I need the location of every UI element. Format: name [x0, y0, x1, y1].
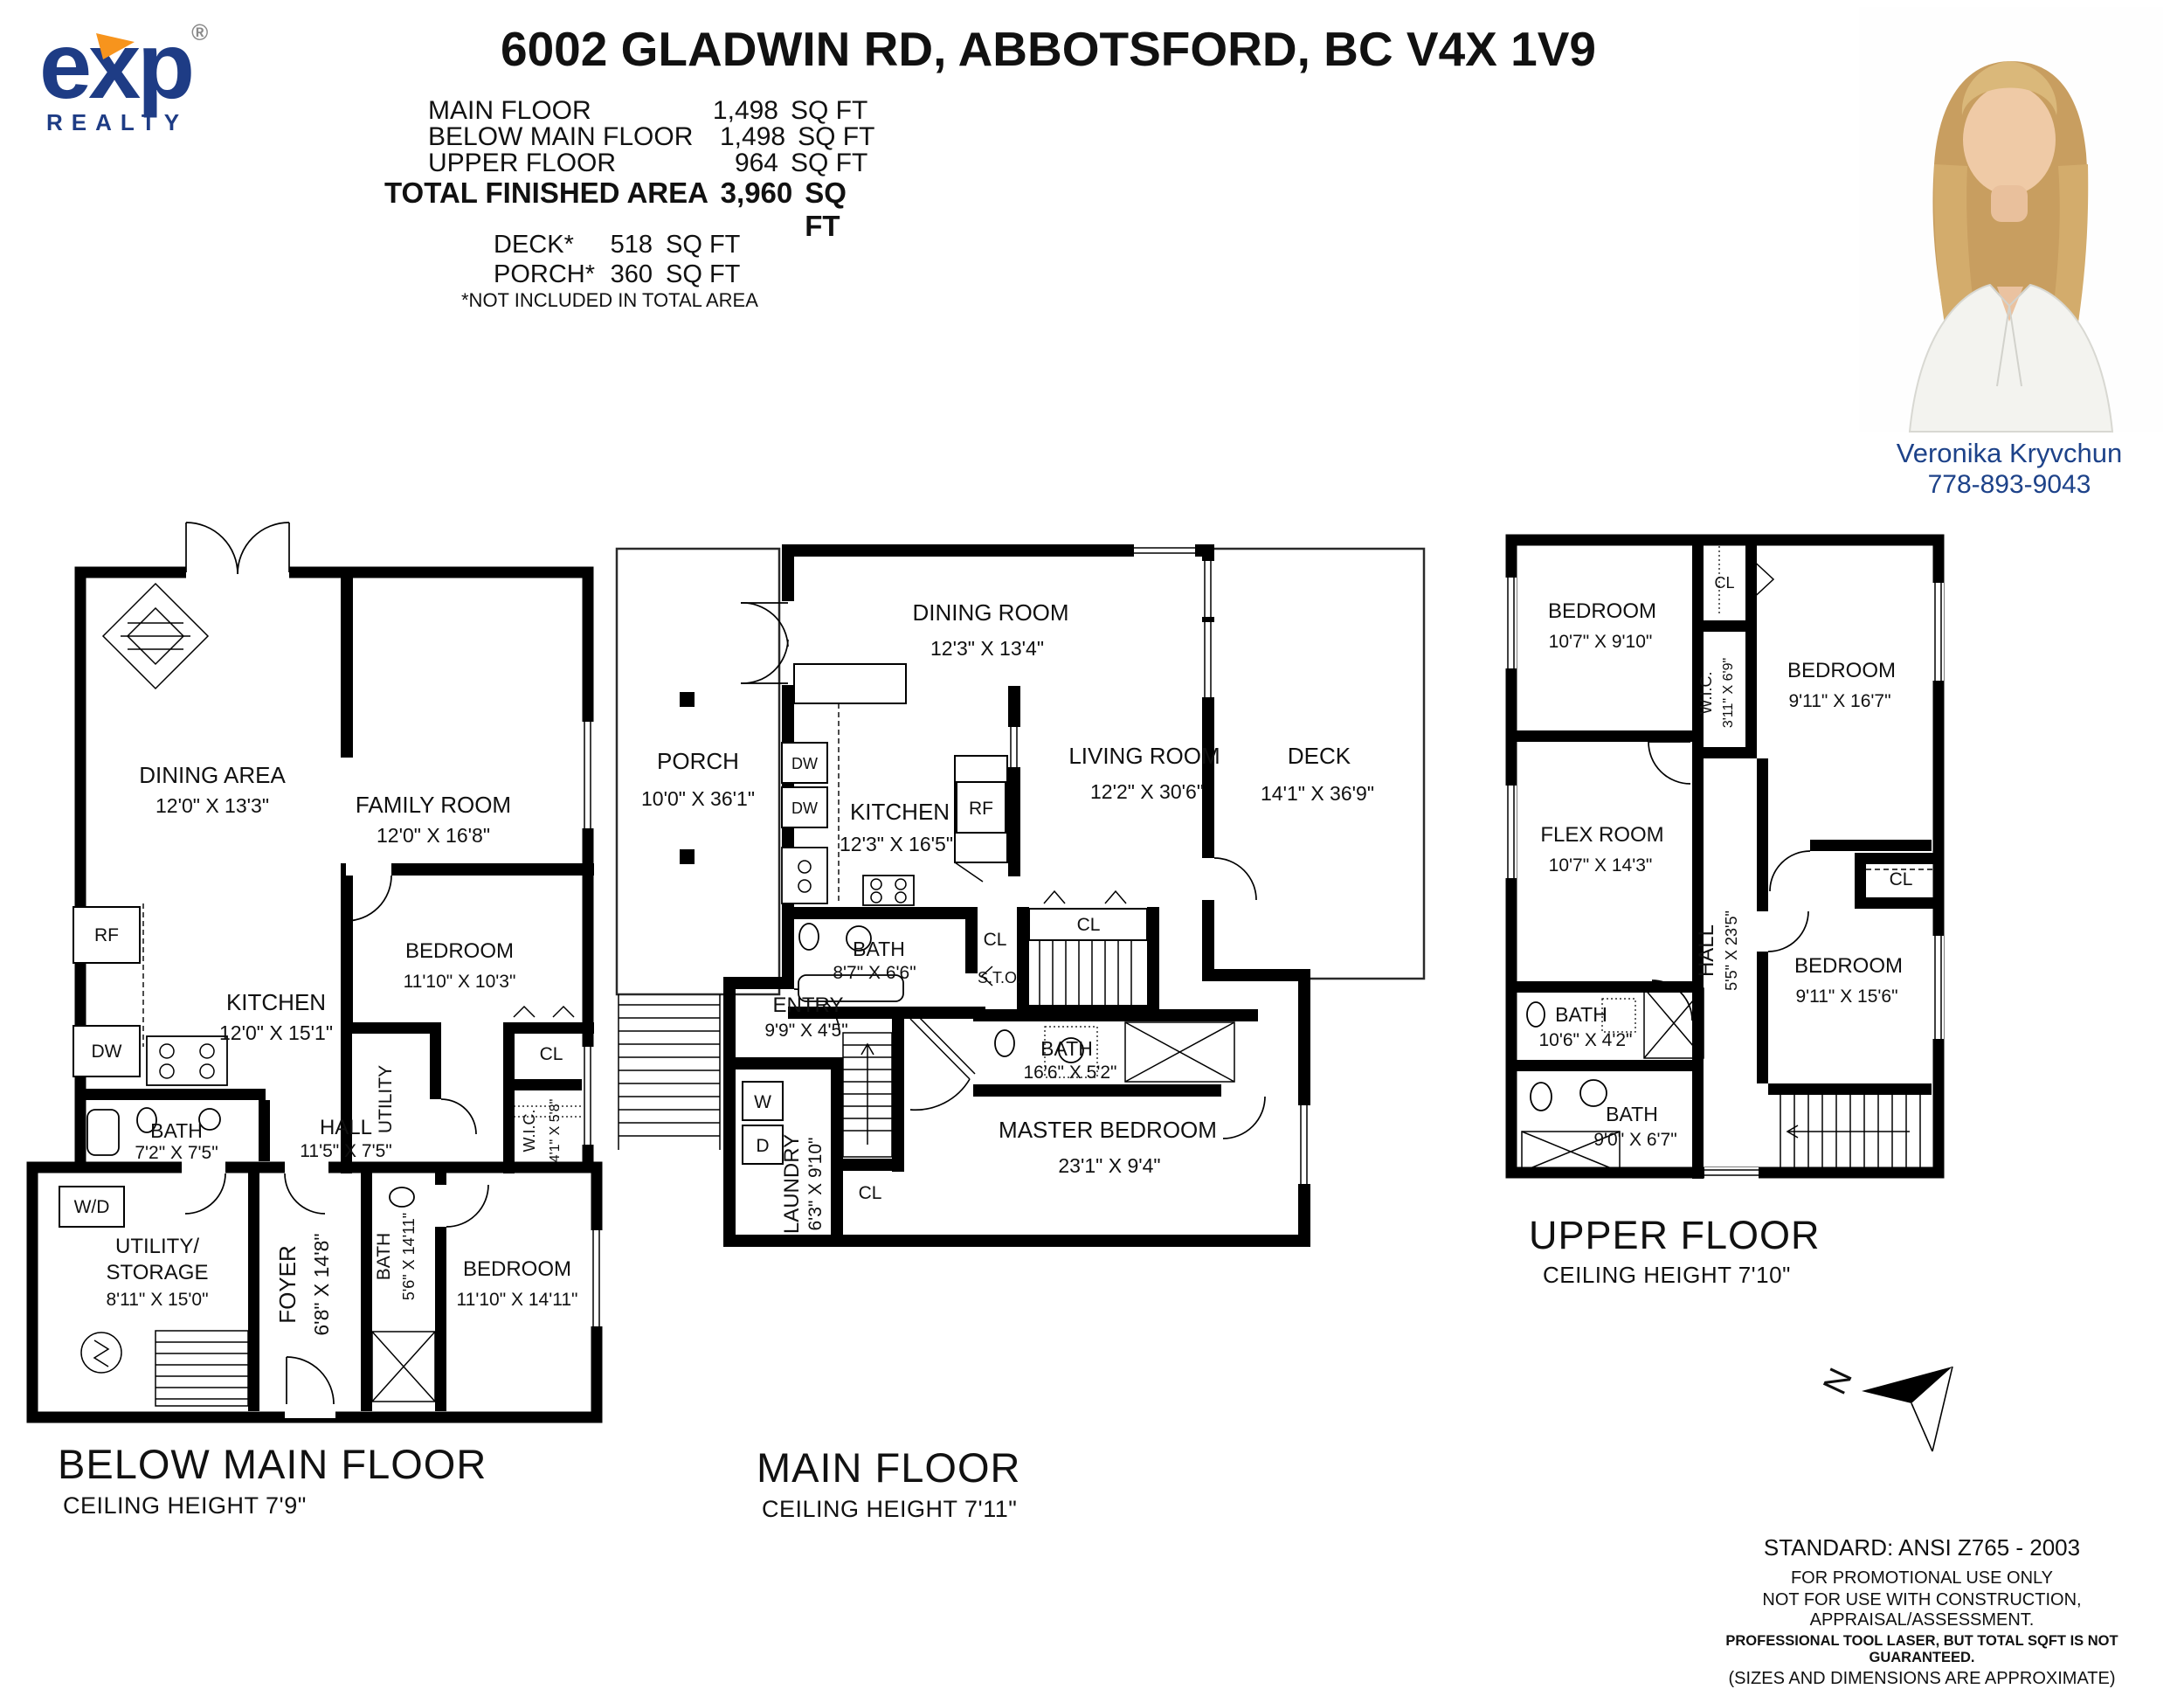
room-label: KITCHEN	[850, 799, 950, 825]
wall-mbath-top	[973, 1009, 1258, 1021]
extra-row-deck: DECK*518SQ FT	[494, 231, 749, 260]
closet-label: CL	[540, 1044, 563, 1064]
room-label: BATH	[374, 1233, 394, 1280]
shower-box	[372, 1332, 435, 1402]
storage-label: S.T.O.	[978, 969, 1021, 986]
sink-icon	[1580, 1080, 1607, 1106]
shower-box	[1125, 1022, 1234, 1082]
disclaimer-not-for-use: NOT FOR USE WITH CONSTRUCTION, APPRAISAL…	[1677, 1590, 2167, 1630]
disclaimer-approximate: (SIZES AND DIMENSIONS ARE APPROXIMATE)	[1677, 1669, 2167, 1689]
toilet-icon	[1527, 1002, 1545, 1027]
room-label: UTILITY/	[115, 1235, 199, 1258]
wall-kitchen-bath	[80, 1089, 266, 1100]
stove-icon	[863, 876, 914, 905]
logo-orange-accent-icon	[94, 31, 136, 61]
room-dims: 12'3" X 16'5"	[840, 833, 953, 855]
room-label: LIVING ROOM	[1068, 743, 1220, 769]
room-label: DINING AREA	[139, 762, 286, 788]
closet-label: CL	[984, 930, 1007, 950]
wall-bedroom1-bottom	[1517, 730, 1692, 742]
room-label: ENTRY	[773, 993, 844, 1017]
extra-row-porch: PORCH*360SQ FT	[494, 260, 749, 290]
room-label: STORAGE	[107, 1261, 209, 1284]
area-row-main: MAIN FLOOR1,498SQ FT	[384, 96, 878, 122]
extras-summary: DECK*518SQ FT PORCH*360SQ FT	[494, 231, 749, 290]
toilet-icon	[390, 1187, 414, 1207]
wall-foyer-bath	[361, 1167, 372, 1411]
wall-wic-bottom	[1692, 747, 1757, 758]
room-label: HALL	[320, 1116, 372, 1139]
room-dims: 9'11" X 16'7"	[1788, 691, 1890, 711]
main-floor-title: MAIN FLOOR	[757, 1443, 1020, 1492]
room-dims: 12'0" X 15'1"	[219, 1021, 333, 1044]
room-dims: 9'11" X 15'6"	[1795, 986, 1897, 1007]
toilet-icon	[995, 1030, 1014, 1056]
room-dims: 12'3" X 13'4"	[930, 637, 1044, 660]
below-openings-doors	[182, 523, 603, 1418]
wall-living-partial	[1008, 686, 1020, 876]
upper-floor-ceiling: CEILING HEIGHT 7'10"	[1543, 1262, 1791, 1289]
below-floor-ceiling: CEILING HEIGHT 7'9"	[63, 1492, 307, 1519]
tub-icon	[87, 1110, 119, 1155]
room-dims: 8'11" X 15'0"	[106, 1290, 208, 1310]
room-dims: 8'7" X 6'6"	[833, 963, 916, 983]
room-dims: 11'10" X 14'11"	[457, 1290, 578, 1310]
room-dims: 11'5" X 7'5"	[300, 1141, 391, 1161]
room-label: BEDROOM	[1794, 954, 1903, 978]
room-dims: 14'1" X 36'9"	[1261, 782, 1374, 805]
room-label: HALL	[1695, 924, 1718, 977]
page-title: 6002 GLADWIN RD, ABBOTSFORD, BC V4X 1V9	[288, 21, 1808, 77]
stairs-below	[156, 1331, 248, 1406]
wall-utility-top	[341, 1022, 441, 1034]
wall-cl-wic-left	[1692, 540, 1704, 758]
logo-e: e	[39, 12, 88, 118]
upper-floor-plan: BEDROOM 10'7" X 9'10" CL W.I.C. 3'11" X …	[1499, 527, 1953, 1200]
disclaimer-standard: STANDARD: ANSI Z765 - 2003	[1677, 1534, 2167, 1561]
area-row-below: BELOW MAIN FLOOR1,498SQ FT	[384, 122, 878, 149]
closet-label: CL	[859, 1183, 882, 1203]
room-dims: 9'9" X 4'5"	[764, 1021, 847, 1041]
area-row-total: TOTAL FINISHED AREA3,960SQ FT	[384, 177, 878, 208]
room-label: LAUNDRY	[780, 1134, 804, 1234]
wall-bath-cl	[965, 907, 978, 973]
wall-bath-divider	[1517, 1060, 1692, 1071]
porch-steps	[619, 994, 720, 1150]
room-label: BATH	[1040, 1037, 1093, 1060]
room-dims: 5'5" X 23'5"	[1723, 910, 1740, 991]
fridge-label: RF	[94, 925, 119, 945]
wall-laundry-top	[729, 1057, 843, 1069]
room-label: FOYER	[274, 1245, 301, 1324]
toilet-icon	[799, 924, 819, 950]
wall-cl-bottom	[503, 1079, 594, 1090]
wall-wic-left	[503, 1090, 515, 1173]
wall-utility-right	[430, 1022, 441, 1099]
dishwasher-label: DW	[791, 800, 818, 817]
upper-floor-title: UPPER FLOOR	[1529, 1213, 1821, 1258]
wall-cl2-left	[1855, 853, 1866, 909]
fireplace-icon	[103, 584, 208, 689]
room-label: W.I.C.	[1697, 672, 1715, 715]
agent-photo	[1859, 7, 2163, 432]
room-label: MASTER BEDROOM	[999, 1117, 1217, 1143]
closet-label: CL	[1714, 574, 1734, 592]
wall-stairs-right	[1147, 907, 1159, 1017]
agent-name: Veronika Kryvchun	[1843, 437, 2175, 469]
wall-cl-bottom	[1692, 620, 1757, 632]
room-dims: 12'0" X 16'8"	[377, 824, 490, 847]
fridge-label: RF	[969, 799, 993, 819]
diagonal-door	[910, 1014, 975, 1110]
room-dims: 5'6" X 14'11"	[400, 1213, 418, 1300]
area-row-upper: UPPER FLOOR964SQ FT	[384, 149, 878, 175]
wall-entry-top	[729, 977, 794, 989]
wall-mbath-bottom	[973, 1084, 1223, 1097]
toilet-icon	[1531, 1083, 1552, 1111]
room-label: PORCH	[657, 748, 739, 774]
room-label: UTILITY	[376, 1065, 396, 1133]
wall-cl2-top	[1855, 853, 1939, 864]
room-dims: 11'10" X 10'3"	[404, 972, 516, 992]
room-dims: 16'6" X 5'2"	[1024, 1063, 1117, 1083]
room-dims: 4'1" X 5'8"	[548, 1099, 563, 1163]
wall-storage-foyer	[248, 1167, 259, 1411]
dishwasher-label: DW	[791, 755, 818, 772]
wall-cl3-top	[843, 1159, 904, 1171]
wall-bath-hall	[259, 1100, 270, 1161]
below-floor-title: BELOW MAIN FLOOR	[58, 1440, 487, 1488]
room-label: BATH	[853, 938, 905, 960]
main-floor-plan: PORCH 10'0" X 36'1" DINING ROOM 12'3" X …	[610, 533, 1435, 1284]
stairs-upper	[1780, 1095, 1920, 1167]
washer-label: W	[754, 1092, 771, 1112]
kitchen-sink-icon	[782, 848, 827, 903]
logo-p: p	[137, 12, 191, 118]
compass-n-label: N	[1816, 1363, 1860, 1401]
room-label: BATH	[150, 1119, 203, 1142]
room-label: KITCHEN	[226, 989, 326, 1015]
kitchen-counter	[794, 664, 906, 703]
main-floor-ceiling: CEILING HEIGHT 7'11"	[762, 1496, 1017, 1523]
closet-label: CL	[1890, 869, 1913, 889]
room-dims: 10'6" X 4'2"	[1539, 1030, 1633, 1050]
logo-word: exp®	[39, 23, 240, 107]
wall-cl2-bottom	[1855, 897, 1939, 909]
room-label: DINING ROOM	[912, 599, 1068, 626]
room-label: W.I.C.	[521, 1110, 538, 1153]
porch-post	[680, 692, 695, 707]
stairs-down	[843, 1033, 892, 1157]
logo-x: x	[88, 23, 137, 107]
room-dims: 10'7" X 14'3"	[1549, 855, 1653, 876]
room-dims: 9'0" X 6'7"	[1593, 1130, 1676, 1150]
water-heater-icon	[81, 1333, 121, 1373]
washer-dryer-label: W/D	[74, 1197, 110, 1217]
wall-cl-top	[503, 1022, 594, 1034]
room-label: BEDROOM	[463, 1257, 571, 1281]
room-label: FLEX ROOM	[1540, 823, 1663, 847]
below-main-floor-plan: DINING AREA 12'0" X 13'3" FAMILY ROOM 12…	[24, 488, 606, 1431]
area-note: *NOT INCLUDED IN TOTAL AREA	[461, 289, 750, 312]
room-dims: 10'7" X 9'10"	[1549, 632, 1653, 652]
wall-stairs-top	[1768, 1083, 1932, 1095]
room-dims: 6'8" X 14'8"	[310, 1233, 333, 1335]
room-label: BATH	[1555, 1003, 1607, 1026]
room-label: BATH	[1606, 1103, 1658, 1125]
disclaimer-block: STANDARD: ANSI Z765 - 2003 FOR PROMOTION…	[1677, 1534, 2167, 1689]
wall-bedroom-left	[341, 876, 353, 1033]
wall-laundry-right	[831, 1057, 843, 1241]
wall-stairdown-right	[892, 1019, 904, 1172]
compass-arrow	[1862, 1367, 1952, 1403]
room-label: BEDROOM	[1787, 659, 1896, 682]
room-dims: 6'3" X 9'10"	[805, 1138, 826, 1231]
disclaimer-promotional: FOR PROMOTIONAL USE ONLY	[1677, 1568, 2167, 1589]
room-dims: 10'0" X 36'1"	[641, 787, 755, 810]
room-label: FAMILY ROOM	[356, 792, 511, 818]
area-summary: MAIN FLOOR1,498SQ FT BELOW MAIN FLOOR1,4…	[384, 96, 878, 208]
room-label: BEDROOM	[1548, 599, 1656, 623]
room-label: DECK	[1288, 743, 1351, 769]
wall-dining-family	[341, 572, 353, 758]
wall-stairs-left	[1017, 907, 1029, 1005]
room-dims: 12'0" X 13'3"	[156, 794, 269, 817]
room-dims: 7'2" X 7'5"	[135, 1143, 218, 1163]
dryer-label: D	[756, 1136, 769, 1156]
wall-kitchen-bath	[788, 907, 971, 919]
dishwasher-label: DW	[92, 1042, 122, 1062]
stove-icon	[147, 1036, 227, 1085]
north-compass-icon: N	[1821, 1335, 1970, 1462]
room-label: BEDROOM	[405, 939, 514, 963]
room-dims: 3'11" X 6'9"	[1721, 658, 1736, 728]
room-dims: 23'1" X 9'4"	[1058, 1154, 1160, 1177]
agent-phone: 778-893-9043	[1843, 470, 2175, 500]
porch-post	[680, 849, 695, 864]
room-dims: 12'2" X 30'6"	[1090, 780, 1204, 803]
registered-mark: ®	[191, 19, 208, 45]
wall-bedroom2-left	[1745, 540, 1757, 758]
exp-realty-logo: exp® REALTY	[39, 23, 240, 136]
closet-label: CL	[1077, 915, 1101, 935]
